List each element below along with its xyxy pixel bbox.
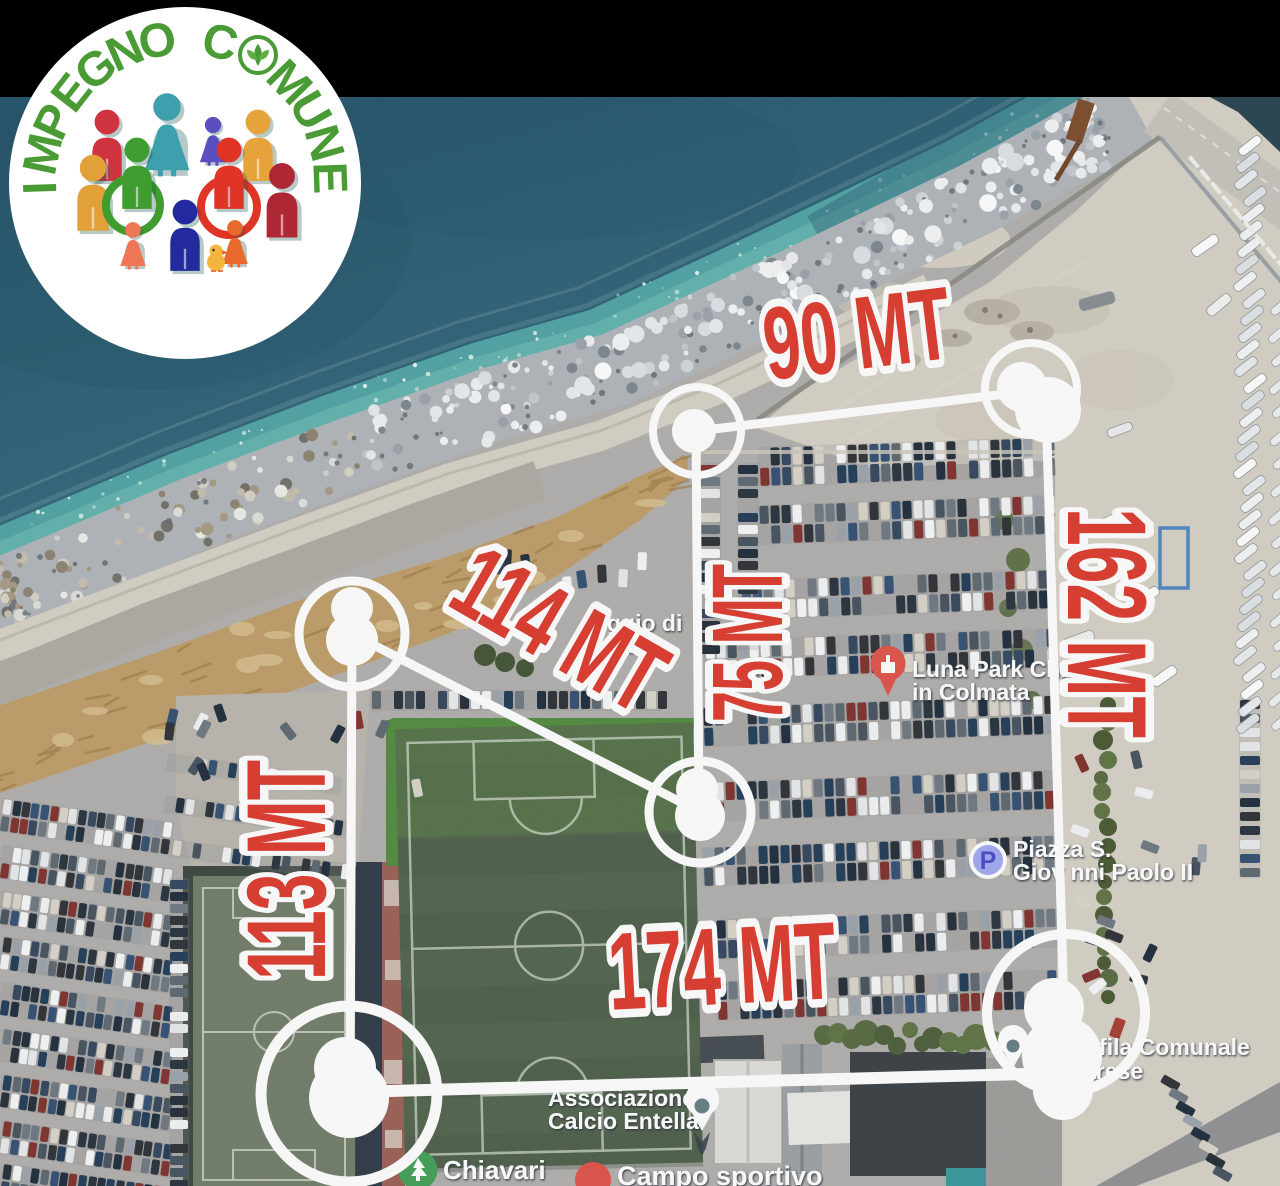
svg-text:E: E	[302, 161, 356, 195]
svg-text:I: I	[14, 180, 67, 195]
